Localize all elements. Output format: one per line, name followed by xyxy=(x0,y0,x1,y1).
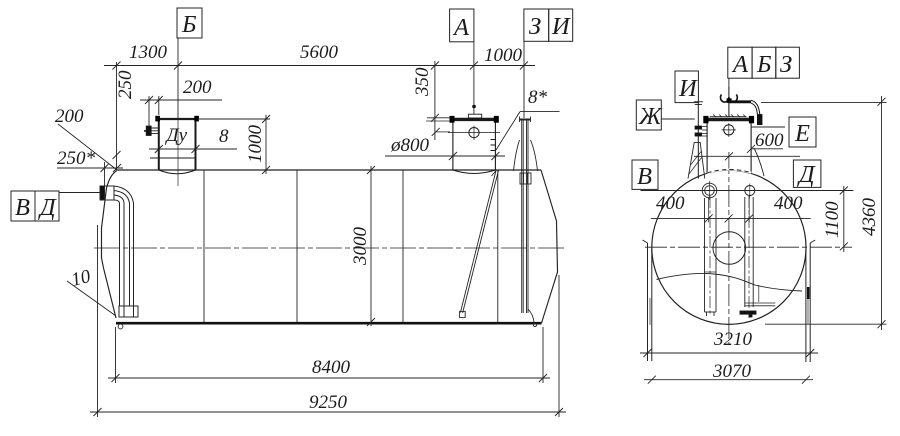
svg-text:350: 350 xyxy=(412,67,433,97)
svg-text:8*: 8* xyxy=(528,87,548,108)
svg-text:1100: 1100 xyxy=(822,201,843,238)
svg-text:ø800: ø800 xyxy=(390,135,430,156)
svg-text:1000: 1000 xyxy=(484,45,523,66)
svg-text:Б: Б xyxy=(181,11,196,38)
svg-text:200: 200 xyxy=(183,77,212,98)
svg-text:8: 8 xyxy=(219,126,229,147)
svg-text:3070: 3070 xyxy=(712,361,752,382)
svg-text:600: 600 xyxy=(755,130,784,151)
svg-text:1000: 1000 xyxy=(245,125,266,164)
svg-text:В: В xyxy=(637,163,652,190)
svg-text:Д: Д xyxy=(38,194,57,221)
svg-text:3000: 3000 xyxy=(350,227,371,267)
svg-text:9250: 9250 xyxy=(309,392,348,413)
svg-text:5600: 5600 xyxy=(300,42,339,63)
svg-text:10: 10 xyxy=(69,266,93,291)
svg-text:И: И xyxy=(678,75,698,102)
svg-text:З: З xyxy=(529,13,541,40)
svg-text:200: 200 xyxy=(55,106,84,127)
svg-text:400: 400 xyxy=(774,193,803,214)
svg-text:В: В xyxy=(15,194,30,221)
svg-text:Б: Б xyxy=(756,51,771,78)
svg-text:Д: Д xyxy=(797,161,816,188)
svg-text:З: З xyxy=(780,51,792,78)
svg-text:1300: 1300 xyxy=(129,42,168,63)
svg-text:250*: 250* xyxy=(57,148,96,169)
svg-text:А: А xyxy=(452,14,470,41)
svg-text:4360: 4360 xyxy=(859,198,880,237)
svg-text:400: 400 xyxy=(656,193,685,214)
svg-text:А: А xyxy=(731,51,749,78)
svg-text:И: И xyxy=(551,13,571,40)
svg-text:Ду: Ду xyxy=(165,125,188,146)
svg-text:Ж: Ж xyxy=(638,103,663,130)
svg-text:3210: 3210 xyxy=(713,329,753,350)
svg-text:250: 250 xyxy=(115,70,136,99)
svg-text:8400: 8400 xyxy=(312,357,351,378)
svg-text:Е: Е xyxy=(794,120,810,147)
